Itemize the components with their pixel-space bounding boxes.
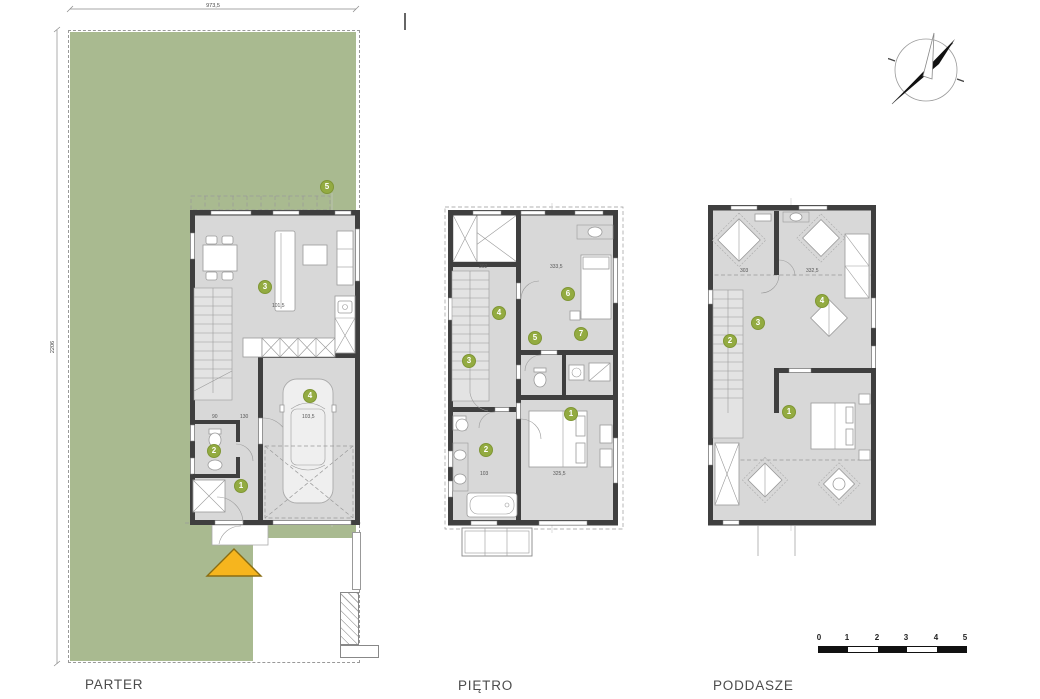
plot-dimension-left: 2206 [48,22,66,672]
scale-tick: 5 [963,633,967,642]
floor-label-pietro: PIĘTRO [458,678,513,693]
room-marker: 4 [303,389,317,403]
sofa [275,231,295,311]
dim-label: 130 [240,414,248,420]
attic-closet [715,443,739,505]
entrance-porch [212,525,268,545]
dim-label: 90 [212,414,218,420]
room-marker: 7 [574,327,588,341]
dim-label: 103,5 [302,414,315,420]
washing-machine [569,365,584,380]
room-marker: 5 [528,331,542,345]
site-plan-page: 973,5 2206 [0,0,1040,699]
room-marker: 3 [258,280,272,294]
room-marker: 6 [561,287,575,301]
floor-label-poddasze: PODDASZE [713,678,794,693]
room-marker: 1 [564,407,578,421]
registration-tick [404,13,406,30]
wc-sink [208,460,222,470]
room-marker: 2 [207,444,221,458]
staircase [452,271,489,411]
staircase [713,290,743,438]
scale-tick: 0 [817,633,821,642]
laundry-unit [589,363,610,381]
toilet [534,368,546,387]
scale-tick: 3 [904,633,908,642]
balcony [462,528,532,556]
pietro-floor-plan [443,203,628,563]
understair-closet [193,480,225,512]
room-marker: 2 [723,334,737,348]
dim-label: 303 [740,268,748,274]
void-over-living [453,215,517,262]
room-marker: 4 [492,306,506,320]
pergola [191,196,330,210]
scale-tick: 1 [845,633,849,642]
floor-label-parter: PARTER [85,677,143,692]
fence-base [340,645,379,658]
tv-cabinet [337,231,353,285]
scale-tick: 4 [934,633,938,642]
plot-width-value: 973,5 [206,3,220,9]
scale-bar-segments [818,646,967,653]
room-marker: 3 [751,316,765,330]
plot-height-value: 2206 [50,341,56,353]
kitchen-sink [338,301,352,313]
dim-label: 302 [479,264,487,270]
room-marker: 3 [462,354,476,368]
dim-label: 333,5 [550,264,563,270]
parter-floor-plan [185,193,365,553]
coffee-table [303,245,327,265]
garden-marker: 5 [320,180,334,194]
room-marker: 1 [234,479,248,493]
desk [755,214,771,221]
fence-hatched-strip [340,592,359,645]
attic-cabinet [845,234,869,298]
room-marker: 2 [479,443,493,457]
poddasze-floor-plan [703,198,883,563]
staircase [194,288,232,400]
room-marker: 1 [782,405,796,419]
room-marker: 4 [815,294,829,308]
dim-label: 332,5 [806,268,819,274]
dim-label: 325,5 [553,471,566,477]
dim-label: 101,5 [272,303,285,309]
dim-label: 103 [480,471,488,477]
plot-dimension-top: 973,5 [60,0,365,16]
scale-tick: 2 [875,633,879,642]
scale-bar: 0 1 2 3 4 5 [818,633,966,655]
compass-icon [888,32,964,108]
